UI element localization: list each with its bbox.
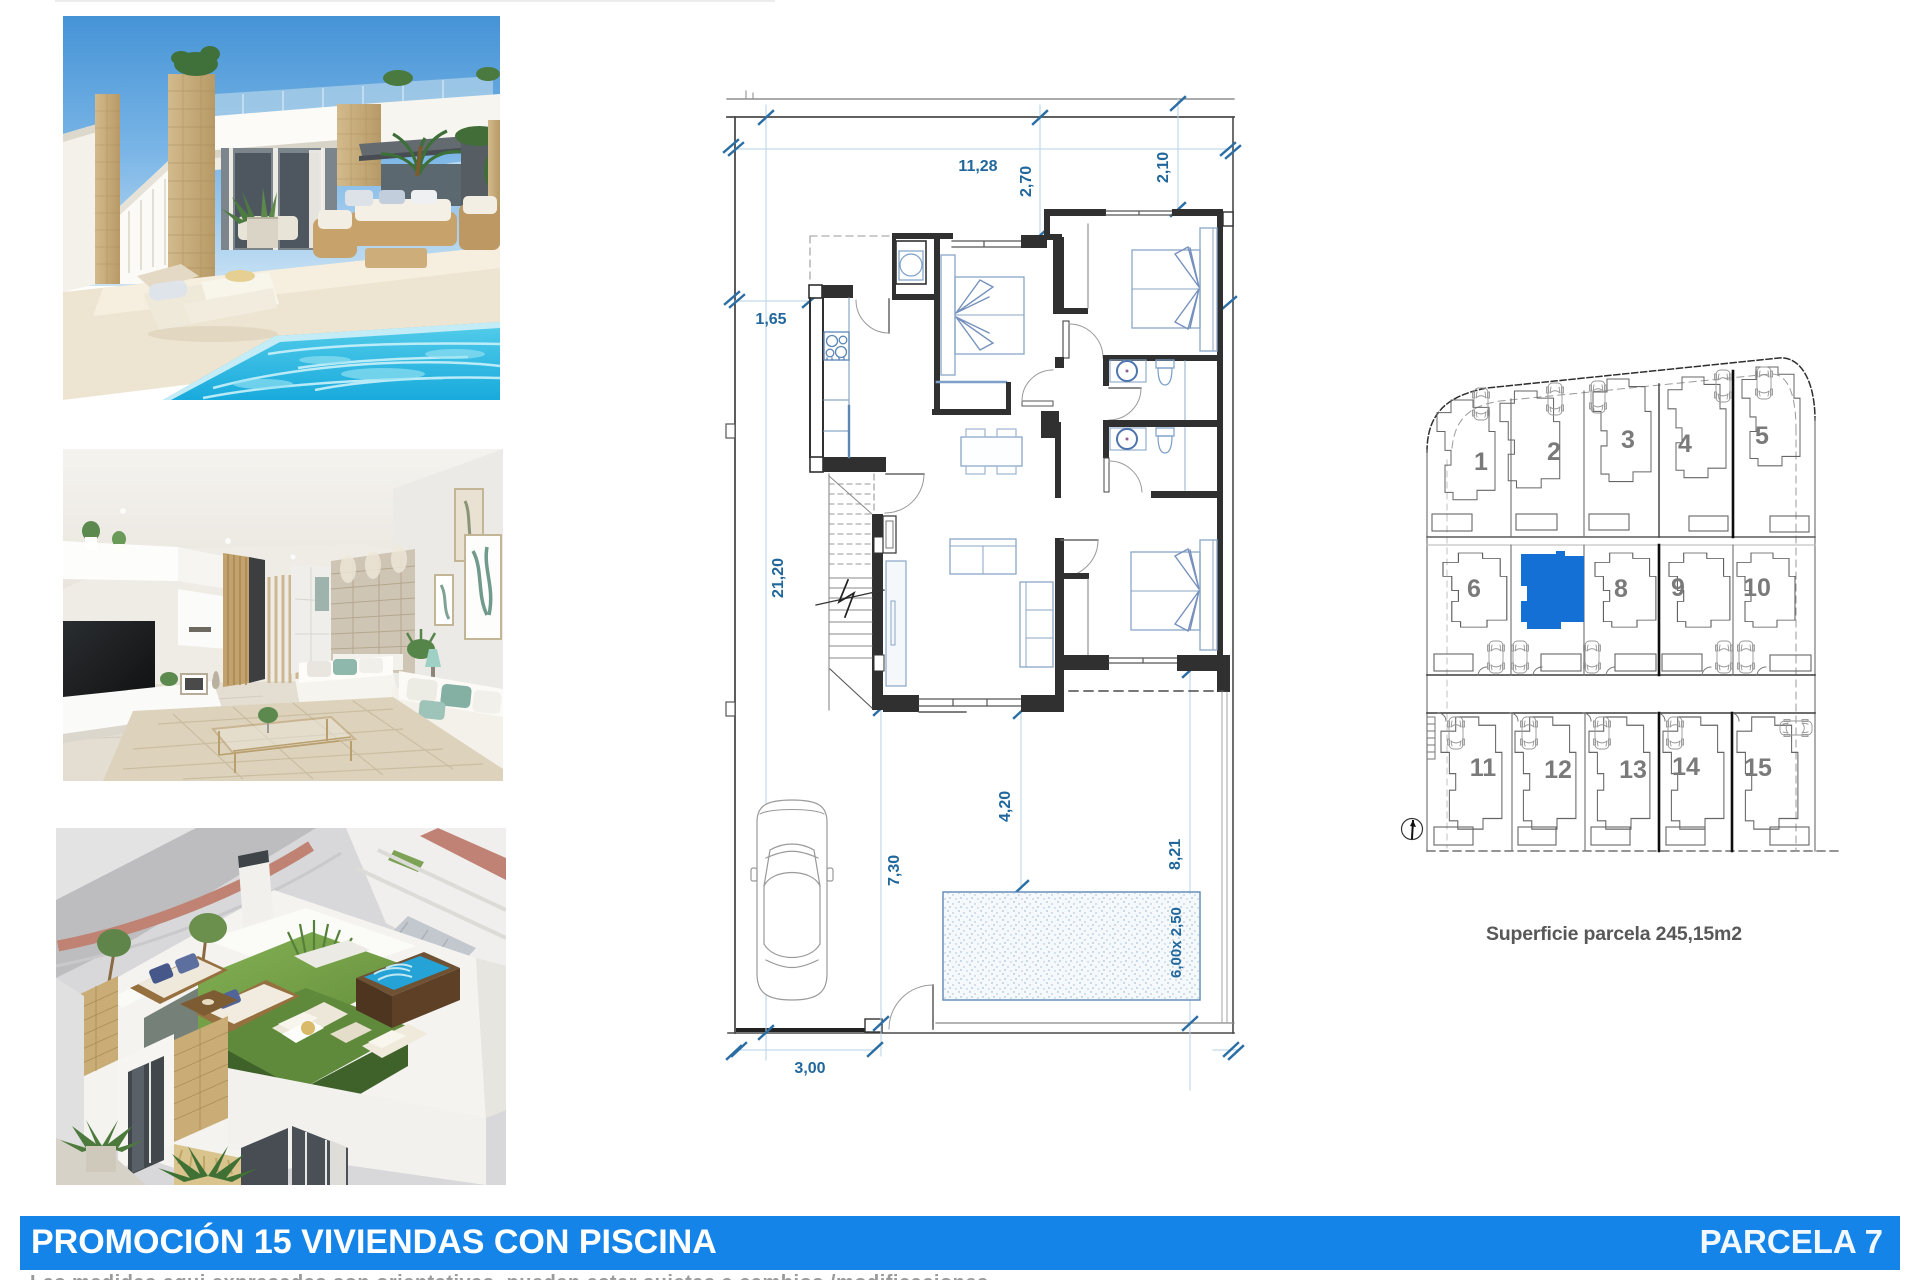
svg-text:10: 10 xyxy=(1743,574,1771,602)
svg-text:1: 1 xyxy=(1474,448,1488,476)
svg-text:6: 6 xyxy=(1467,575,1481,603)
svg-text:8,21: 8,21 xyxy=(1167,839,1184,870)
svg-text:2,70: 2,70 xyxy=(1018,166,1035,197)
svg-text:4,20: 4,20 xyxy=(997,791,1014,822)
svg-text:11,28: 11,28 xyxy=(958,158,997,175)
svg-text:3: 3 xyxy=(1621,426,1635,454)
svg-text:5: 5 xyxy=(1755,422,1769,450)
svg-text:11: 11 xyxy=(1470,754,1497,782)
svg-text:6,00x 2,50: 6,00x 2,50 xyxy=(1168,907,1185,978)
svg-text:2,10: 2,10 xyxy=(1155,152,1172,183)
svg-text:21,20: 21,20 xyxy=(770,558,787,598)
svg-text:9: 9 xyxy=(1671,574,1685,602)
svg-text:14: 14 xyxy=(1672,753,1700,781)
svg-text:2: 2 xyxy=(1547,438,1561,466)
svg-text:12: 12 xyxy=(1544,756,1572,784)
svg-text:3,00: 3,00 xyxy=(794,1060,825,1077)
svg-text:15: 15 xyxy=(1744,754,1772,782)
svg-text:4: 4 xyxy=(1678,430,1692,458)
svg-text:7,30: 7,30 xyxy=(886,855,903,886)
svg-text:13: 13 xyxy=(1619,756,1647,784)
svg-text:1,65: 1,65 xyxy=(755,311,786,328)
svg-text:8: 8 xyxy=(1614,575,1628,603)
